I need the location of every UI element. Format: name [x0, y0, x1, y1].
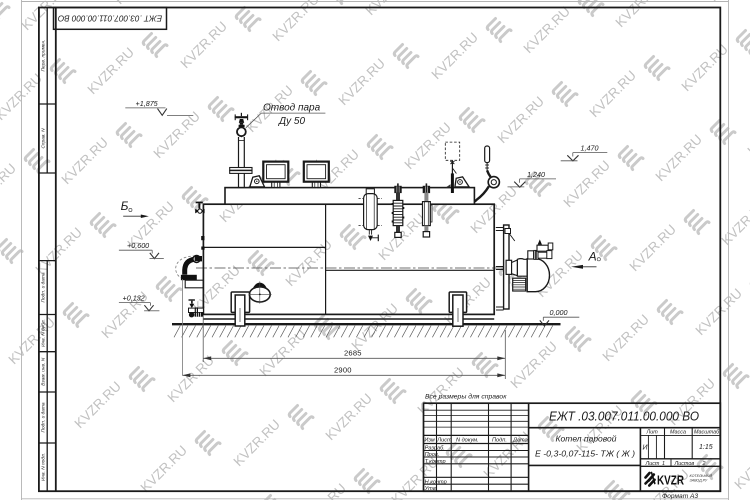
svg-text:Все размеры для справок: Все размеры для справок — [425, 393, 507, 401]
svg-text:Отвод пара: Отвод пара — [263, 102, 321, 113]
svg-text:Подп. и дата: Подп. и дата — [41, 272, 47, 302]
svg-text:2685: 2685 — [344, 348, 362, 357]
svg-text:2: 2 — [702, 461, 706, 467]
svg-text:2900: 2900 — [334, 365, 352, 374]
svg-text:+0,132: +0,132 — [123, 294, 145, 303]
svg-text:Разраб.: Разраб. — [425, 445, 445, 451]
svg-text:ЕЖТ .03.007.011.00.000 ВО: ЕЖТ .03.007.011.00.000 ВО — [549, 408, 699, 423]
svg-text:0,000: 0,000 — [550, 308, 568, 317]
svg-text:Е -0,3-0,07-115- ТЖ ( Ж ): Е -0,3-0,07-115- ТЖ ( Ж ) — [535, 449, 635, 459]
svg-text:Масштаб: Масштаб — [694, 430, 720, 436]
svg-text:Лист: Лист — [645, 461, 660, 467]
svg-text:KVZR: KVZR — [657, 474, 684, 488]
svg-text:1,470: 1,470 — [581, 144, 599, 153]
svg-text:Утв.: Утв. — [424, 486, 438, 492]
svg-text:+0,600: +0,600 — [127, 241, 149, 250]
svg-text:Подп. и дата: Подп. и дата — [41, 402, 47, 432]
svg-text:Подп.: Подп. — [492, 438, 507, 444]
svg-text:Пров.: Пров. — [425, 452, 440, 458]
svg-text:Б: Б — [121, 199, 129, 213]
svg-text:1,240: 1,240 — [527, 170, 545, 179]
svg-text:Лист: Лист — [436, 438, 452, 444]
svg-text:Лит: Лит — [646, 430, 659, 436]
svg-text:1:15: 1:15 — [699, 444, 713, 451]
svg-text:N докум.: N докум. — [456, 438, 479, 444]
svg-text:ЕЖТ .03.007.011.00.000 ВО: ЕЖТ .03.007.011.00.000 ВО — [57, 14, 162, 23]
svg-text:Н.контр: Н.контр — [425, 479, 447, 485]
svg-text:Масса: Масса — [670, 430, 686, 436]
svg-text:Ду 50: Ду 50 — [278, 116, 305, 127]
svg-text:Изм: Изм — [424, 438, 435, 444]
svg-text:Т.контр: Т.контр — [425, 459, 446, 465]
svg-text:+1,875: +1,875 — [136, 99, 159, 108]
svg-text:Справ. N: Справ. N — [41, 128, 47, 149]
svg-text:А: А — [588, 250, 597, 264]
svg-text:ЗАВОД.РУ: ЗАВОД.РУ — [690, 479, 708, 483]
svg-text:Инв. N дубл.: Инв. N дубл. — [41, 319, 47, 347]
svg-text:Листов: Листов — [674, 461, 695, 467]
svg-text:Перв. примен.: Перв. примен. — [41, 40, 47, 72]
svg-text:Инв. N подл.: Инв. N подл. — [41, 453, 47, 481]
svg-text:Котел паровой: Котел паровой — [556, 434, 617, 444]
svg-text:Взам. инв. N: Взам. инв. N — [41, 357, 47, 385]
svg-text:Дата: Дата — [512, 438, 528, 444]
svg-text:1: 1 — [662, 461, 665, 467]
svg-text:КОТЕЛЬНЫЙ: КОТЕЛЬНЫЙ — [690, 474, 713, 478]
svg-text:Формат А3: Формат А3 — [662, 493, 698, 500]
